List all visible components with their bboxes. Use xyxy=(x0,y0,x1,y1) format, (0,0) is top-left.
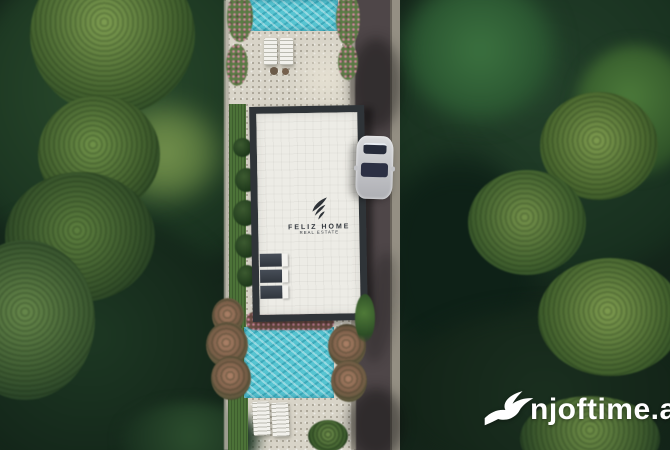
panel-dark-1 xyxy=(260,253,282,266)
sun-lounger-top-2 xyxy=(280,38,293,65)
garden-bush-bottom xyxy=(308,420,348,450)
side-table-top xyxy=(270,67,278,75)
panel-dark-2 xyxy=(260,269,282,282)
panel-frame-3 xyxy=(282,285,288,298)
car-rear-window xyxy=(363,143,386,155)
roof-logo-tagline: REAL ESTATE xyxy=(292,230,347,235)
tree-right-middle xyxy=(468,170,586,275)
flame-f-logo-icon xyxy=(310,197,328,223)
palm-right-2 xyxy=(331,360,367,402)
plant-overhanging-road xyxy=(355,294,375,342)
sun-lounger-bottom-1 xyxy=(252,401,271,436)
sun-lounger-top-1 xyxy=(264,38,277,65)
roof-panel-1 xyxy=(260,253,288,266)
roof-panel-2 xyxy=(260,269,288,282)
swallow-bird-icon xyxy=(482,388,536,432)
roof-panel-3 xyxy=(260,285,288,298)
roof-logo: FELIZ HOME REAL ESTATE xyxy=(281,196,358,237)
roof-panels xyxy=(260,253,289,298)
sun-lounger-bottom-2 xyxy=(271,402,290,437)
villa-building: FELIZ HOME REAL ESTATE xyxy=(249,105,368,322)
flower-bush-top-left-2 xyxy=(226,44,248,86)
pool-top xyxy=(242,0,338,31)
car-mirror-right xyxy=(391,166,395,171)
car-mirror-left xyxy=(354,165,358,170)
car-windshield xyxy=(361,163,388,178)
pool-bottom xyxy=(244,327,334,398)
panel-frame-1 xyxy=(282,253,288,266)
side-table-top-2 xyxy=(282,68,289,75)
watermark-text: njoftime.al xyxy=(530,393,670,427)
watermark: njoftime.al xyxy=(482,388,670,432)
flower-bush-top-right-2 xyxy=(338,44,358,80)
palm-left-3 xyxy=(211,356,251,400)
panel-frame-2 xyxy=(282,269,288,282)
tree-right-lower xyxy=(538,258,670,376)
panel-dark-3 xyxy=(260,285,282,298)
aerial-render-scene: FELIZ HOME REAL ESTATE xyxy=(0,0,670,450)
car xyxy=(355,136,394,200)
